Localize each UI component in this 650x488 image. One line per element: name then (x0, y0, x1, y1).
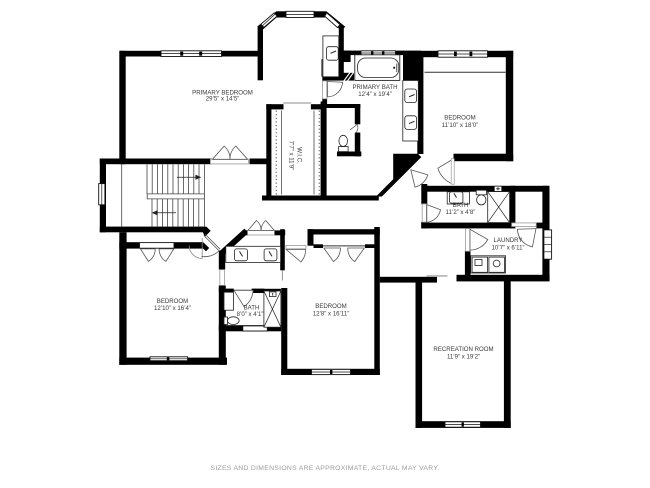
svg-text:12’8” x 16’11”: 12’8” x 16’11” (313, 311, 349, 318)
svg-text:BEDROOM: BEDROOM (315, 303, 347, 310)
svg-text:12’4” x 19’4”: 12’4” x 19’4” (358, 91, 392, 98)
svg-text:8’0” x 4’1”: 8’0” x 4’1” (237, 311, 264, 318)
svg-text:BATH: BATH (453, 202, 469, 209)
svg-text:RECREATION ROOM: RECREATION ROOM (433, 346, 493, 353)
svg-text:LAUNDRY: LAUNDRY (493, 237, 522, 244)
svg-text:W.I.C.: W.I.C. (296, 147, 303, 164)
svg-text:29’5” x 14’5”: 29’5” x 14’5” (206, 96, 240, 103)
svg-text:11’10” x 18’0”: 11’10” x 18’0” (442, 122, 478, 129)
svg-text:PRIMARY BATH: PRIMARY BATH (352, 84, 397, 91)
svg-text:11’9” x 19’2”: 11’9” x 19’2” (447, 354, 480, 361)
svg-text:11’2” x 4’8”: 11’2” x 4’8” (446, 209, 476, 216)
svg-text:7’7” x 11’9”: 7’7” x 11’9” (288, 141, 295, 171)
svg-text:12’10” x 16’4”: 12’10” x 16’4” (154, 305, 191, 312)
svg-text:10’7” x 6’11”: 10’7” x 6’11” (491, 245, 524, 252)
svg-text:BEDROOM: BEDROOM (444, 115, 476, 122)
svg-text:SIZES AND DIMENSIONS ARE APPRO: SIZES AND DIMENSIONS ARE APPROXIMATE, AC… (211, 465, 440, 472)
